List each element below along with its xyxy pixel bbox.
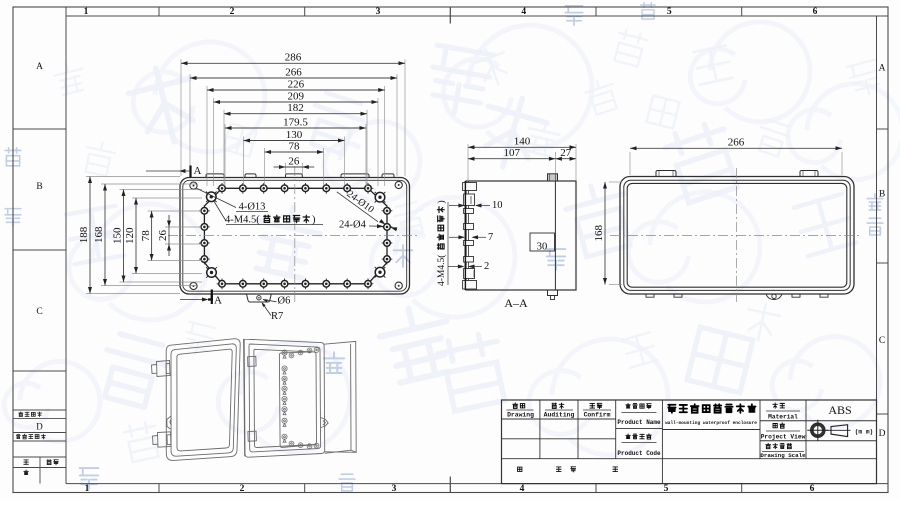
svg-text:286: 286	[285, 52, 302, 64]
svg-text:): )	[436, 200, 447, 203]
svg-text:Project View: Project View	[761, 433, 806, 440]
svg-text:168: 168	[593, 225, 605, 242]
svg-text:Auditing: Auditing	[544, 411, 575, 418]
svg-text:A: A	[214, 295, 222, 307]
svg-text:30: 30	[537, 242, 548, 253]
svg-text:1: 1	[85, 484, 90, 494]
svg-text:): )	[312, 215, 316, 226]
svg-text:1: 1	[84, 7, 89, 17]
svg-text:Product Name: Product Name	[617, 419, 661, 426]
svg-text:26: 26	[157, 230, 169, 242]
svg-text:A: A	[879, 64, 886, 74]
svg-text:Drawing: Drawing	[507, 411, 534, 418]
svg-text:6: 6	[813, 7, 818, 17]
svg-text:3: 3	[376, 7, 381, 17]
svg-text:Confirm: Confirm	[584, 411, 611, 418]
svg-text:140: 140	[514, 136, 531, 148]
svg-text:A: A	[36, 62, 43, 72]
svg-text:Material: Material	[768, 414, 798, 421]
svg-text:A–A: A–A	[504, 296, 528, 310]
svg-text:B: B	[879, 190, 885, 200]
svg-text:C: C	[36, 307, 42, 317]
svg-text:2: 2	[230, 7, 235, 17]
svg-text:Ø6: Ø6	[278, 296, 291, 307]
svg-text:D: D	[36, 422, 43, 432]
svg-text:5: 5	[667, 7, 672, 17]
svg-text:B: B	[36, 182, 42, 192]
svg-text:4-Ø13: 4-Ø13	[239, 202, 266, 213]
svg-text:A: A	[194, 165, 202, 177]
svg-text:(m m): (m m)	[855, 428, 874, 435]
svg-text:78: 78	[140, 230, 152, 242]
svg-text:226: 226	[288, 78, 305, 90]
svg-text:266: 266	[728, 137, 745, 149]
svg-text:R7: R7	[271, 311, 283, 322]
svg-text:D: D	[879, 429, 886, 439]
svg-text:6: 6	[810, 484, 815, 494]
svg-text:C: C	[879, 336, 885, 346]
svg-text:266: 266	[285, 66, 302, 78]
svg-text:130: 130	[286, 129, 303, 141]
svg-text:3: 3	[392, 484, 397, 494]
svg-text:4-M4.5(: 4-M4.5(	[225, 215, 260, 226]
svg-text:ABS: ABS	[828, 403, 851, 417]
svg-text:27: 27	[560, 147, 572, 159]
svg-text:4: 4	[520, 484, 525, 494]
svg-text:24-Ø4: 24-Ø4	[339, 220, 367, 231]
svg-text:78: 78	[289, 140, 301, 152]
svg-text:Drawing Scale: Drawing Scale	[760, 452, 806, 459]
svg-text:26: 26	[288, 155, 300, 167]
svg-text:4-M4.5(: 4-M4.5(	[436, 255, 447, 286]
svg-text:188: 188	[78, 226, 90, 243]
svg-text:Product Code: Product Code	[617, 450, 661, 457]
svg-text:150: 150	[112, 227, 124, 244]
svg-text:168: 168	[93, 226, 105, 243]
svg-text:120: 120	[124, 227, 136, 244]
svg-text:10: 10	[492, 200, 503, 211]
svg-text:5: 5	[664, 484, 669, 494]
svg-text:2: 2	[240, 484, 245, 494]
svg-text:4: 4	[521, 7, 526, 17]
svg-text:7: 7	[488, 232, 493, 243]
svg-text:179.5: 179.5	[283, 116, 308, 128]
svg-text:2: 2	[484, 261, 489, 272]
svg-text:107: 107	[503, 147, 520, 159]
svg-text:182: 182	[287, 102, 304, 114]
svg-text:wall-mounting waterproof enclo: wall-mounting waterproof enclosure	[665, 420, 757, 426]
svg-text:209: 209	[288, 90, 305, 102]
